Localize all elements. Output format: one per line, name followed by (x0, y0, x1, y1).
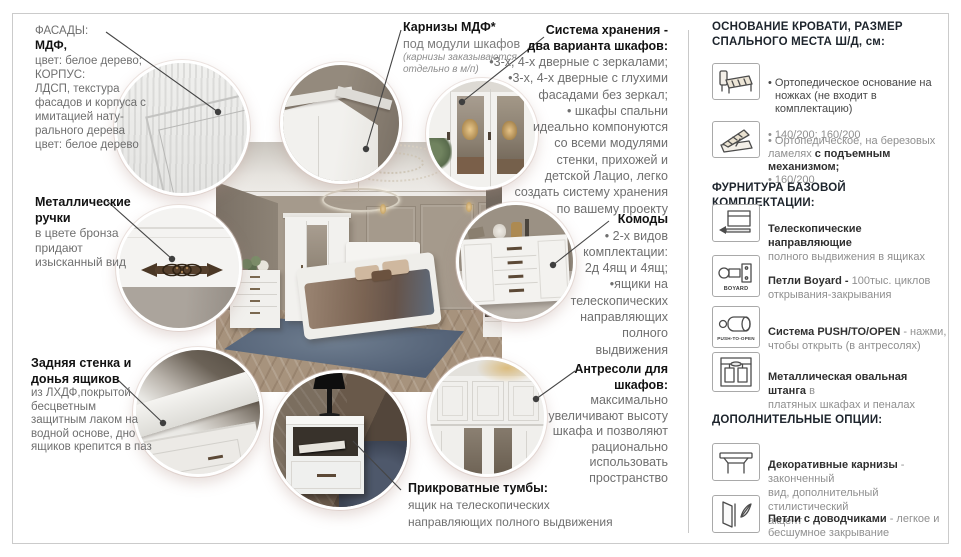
callout-storage: Система хранения - два варианта шкафов: … (453, 22, 668, 217)
book (299, 441, 345, 453)
drawer-handle (250, 288, 260, 290)
sidebar-item-lift-bed: • Ортопедическое, на березовых ламелях с… (768, 122, 948, 187)
drawer-seam (233, 306, 277, 307)
nightstand-drawer (291, 461, 361, 489)
soft-close-lead: Петли с доводчиками (768, 513, 887, 525)
bed-base-text: • Ортопедическое основание на ножках (не… (768, 77, 948, 116)
ring-chandelier (322, 188, 400, 212)
rod-lead: Металлическая овальная штанга (768, 371, 907, 397)
sidebar-section3-title: ДОПОЛНИТЕЛЬНЫЕ ОПЦИИ: (712, 413, 950, 428)
sidebar-item-push: Система PUSH/TO/OPEN - нажми, чтобы откр… (768, 311, 948, 353)
soft-close-hinge-icon (712, 495, 760, 533)
callout-dressers: Комоды • 2-х видов комплектации: 2д 4ящ … (488, 212, 668, 358)
callout-back-panel: Задняя стенка и донья ящиков из ЛХДФ,пок… (31, 355, 181, 455)
sidebar-item-soft-close: Петли с доводчиками - легкое и бесшумное… (768, 498, 948, 540)
handles-title: Металлические ручки (35, 194, 185, 226)
open-gap (464, 428, 482, 474)
nightstand-top (286, 416, 364, 425)
callout-handles: Металлические ручки в цвете бронза прида… (35, 194, 185, 270)
callout-mezzanines: Антресоли для шкафов: максимально увелич… (488, 361, 668, 487)
facades-material: МДФ, (35, 38, 175, 54)
mezzanines-body: максимально увеличивают высоту шкафа и п… (488, 393, 668, 487)
nightstand-niche (293, 427, 358, 457)
sidebar-item-rod: Металлическая овальная штанга в платяных… (768, 356, 948, 412)
nightstands-body: ящик на телескопических направляющих пол… (408, 497, 688, 531)
nightstands-title: Прикроватные тумбы: (408, 481, 688, 497)
dressers-title: Комоды (488, 212, 668, 228)
push-lead: Система PUSH/TO/OPEN (768, 326, 900, 338)
lift-bed-icon (712, 121, 760, 158)
sidebar-item-slides: Телескопические направляющие полного выд… (768, 208, 948, 264)
storage-body: •3-х, 4-х дверные с зеркалами; •3-х, 4-х… (453, 54, 668, 217)
dressers-body: • 2-х видов комплектации: 2д 4ящ и 4ящ; … (488, 228, 668, 358)
telescopic-slides-icon (712, 204, 760, 242)
handles-body: в цвете бронза придают изысканный вид (35, 226, 185, 270)
decorative-cornice-icon (712, 443, 760, 481)
sidebar-section1-title: ОСНОВАНИЕ КРОВАТИ, РАЗМЕР СПАЛЬНОГО МЕСТ… (712, 20, 950, 50)
door-seam (318, 116, 319, 181)
nightstand-circle (270, 370, 410, 510)
shadow-floor (119, 287, 239, 328)
mezzanines-title: Антресоли для шкафов: (488, 361, 668, 393)
push-icon-label: PUSH-TO-OPEN (717, 336, 755, 341)
drawer-handle (250, 312, 260, 314)
callout-nightstands: Прикроватные тумбы: ящик на телескопичес… (408, 481, 688, 531)
facades-label: ФАСАДЫ: (35, 24, 175, 38)
nightstand-body (286, 416, 364, 494)
plant (426, 138, 452, 172)
cornice-circle (280, 62, 402, 184)
drawer-handle (250, 300, 260, 302)
cornices-opt-lead: Декоративные карнизы (768, 459, 898, 471)
oval-rod-icon (712, 352, 760, 392)
catalog-page: ФАСАДЫ: МДФ, цвет: белое дерево; КОРПУС:… (0, 0, 961, 557)
drawer-seam (233, 294, 277, 295)
sidebar-item-boyard: Петли Boyard - 100тыс. циклов открывания… (768, 260, 948, 302)
wall-sconce (380, 204, 386, 214)
sidebar-divider (688, 30, 689, 533)
boyard-icon-label: BOYARD (724, 286, 749, 292)
back-panel-title: Задняя стенка и донья ящиков (31, 355, 181, 387)
table-lamp-shade (313, 373, 345, 389)
callout-facades: ФАСАДЫ: МДФ, цвет: белое дерево; КОРПУС:… (35, 24, 175, 152)
door-seam (441, 431, 442, 474)
push-to-open-icon: PUSH-TO-OPEN (712, 306, 760, 348)
facades-body: цвет: белое дерево; КОРПУС: ЛДСП, тексту… (35, 54, 175, 152)
boyard-lead: Петли Boyard - (768, 275, 852, 287)
storage-title: Система хранения - два варианта шкафов: (453, 22, 668, 54)
slides-lead: Телескопические направляющие (768, 223, 862, 249)
back-panel-body: из ЛХДФ,покрытой бесцветным защитным лак… (31, 387, 181, 455)
bed-base-icon (712, 63, 760, 100)
drawer-handle (250, 276, 260, 278)
mezzanine-door (437, 381, 469, 422)
boyard-hinge-icon: BOYARD (712, 255, 760, 297)
drawer-handle (317, 474, 336, 477)
